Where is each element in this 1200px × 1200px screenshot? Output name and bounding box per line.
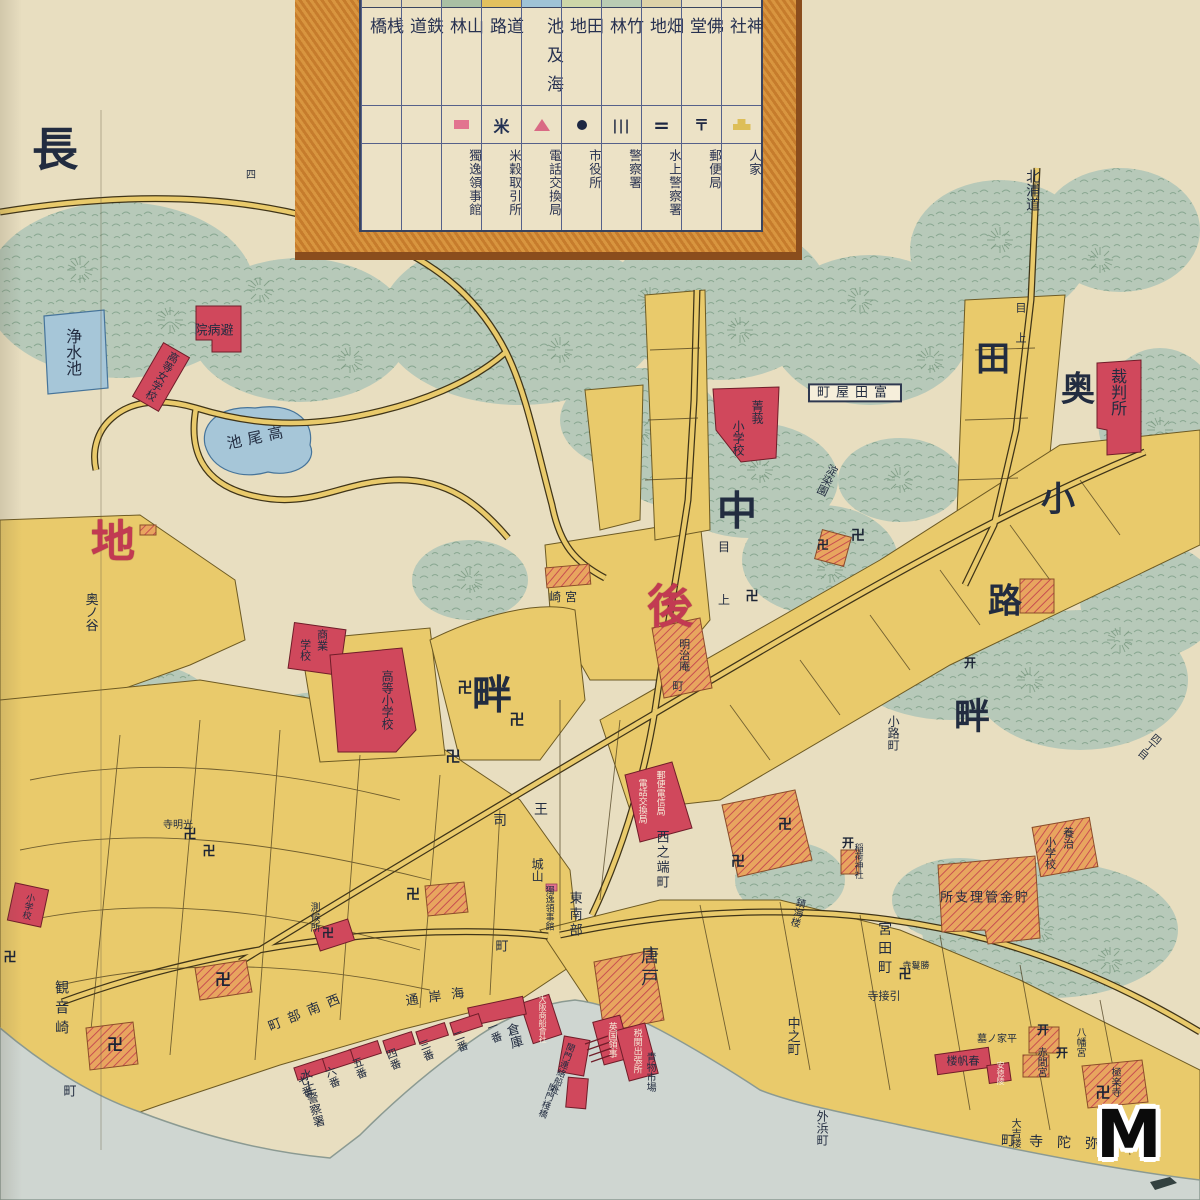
map-label: 楼帆春 — [947, 1055, 980, 1066]
map-label: 院病避 — [194, 324, 233, 337]
shrine-torii-icon: 开 — [842, 837, 854, 849]
map-label: 商業 — [316, 629, 327, 651]
map-label: 小学校 — [1044, 837, 1055, 870]
map-label: 北浦道 — [1025, 169, 1039, 211]
map-label: 四 — [246, 171, 256, 181]
map-label: 西之端町 — [654, 830, 667, 890]
legend-symbol-cell — [522, 106, 561, 144]
map-label: 後 — [647, 584, 693, 631]
map-label: 奥 — [1061, 373, 1095, 408]
temple-manji-icon: 卍 — [745, 591, 758, 604]
temple-manji-icon: 卍 — [731, 855, 745, 869]
map-label: 明治庵 — [678, 639, 689, 672]
legend-terrain-label: 山林 — [442, 8, 481, 106]
map-label: 青物市場 — [644, 1052, 654, 1092]
legend-column: 山林 獨逸領事館 — [441, 0, 481, 230]
map-label: 小 — [1041, 483, 1075, 518]
map-label: 電話交換局 — [636, 779, 645, 824]
legend-symbol-icon — [534, 119, 550, 131]
legend-facility-label: 人家 — [722, 144, 761, 230]
legend-symbol-icon — [493, 113, 509, 137]
map-label: 菁莪 — [751, 400, 763, 424]
legend-panel: 桟橋 鉄道 — [359, 0, 763, 232]
map-label: 目 — [718, 541, 730, 553]
legend-symbol-cell — [682, 106, 721, 144]
map-label: 地 — [91, 521, 135, 566]
legend-column: 鉄道 — [401, 0, 441, 230]
map-label: 城山 — [531, 858, 543, 882]
map-label: 英国領事 — [606, 1022, 615, 1058]
temple-manji-icon: 卍 — [445, 750, 460, 765]
legend-terrain-swatch — [602, 0, 641, 8]
map-label: 獨逸領事館 — [543, 886, 552, 931]
legend-terrain-swatch — [562, 0, 601, 8]
map-label: 八幡宮 — [1074, 1027, 1084, 1057]
map-label: 町 — [63, 1085, 76, 1098]
legend-symbol-icon — [653, 113, 670, 137]
map-label: 町 — [495, 940, 508, 953]
map-label: 路 — [988, 585, 1022, 620]
legend-terrain-label: 佛堂 — [682, 8, 721, 106]
legend-symbol-cell — [442, 106, 481, 144]
map-label: 田 — [976, 343, 1010, 378]
map-label: 所支理管金貯 — [940, 891, 1030, 904]
legend-column: 桟橋 — [361, 0, 401, 230]
legend-symbol-icon — [577, 120, 587, 130]
legend-facility-label: 郵便局 — [682, 144, 721, 230]
map-label: 高等小学校 — [381, 670, 393, 730]
legend-facility-label — [402, 144, 441, 230]
legend-facility-label: 獨逸領事館 — [442, 144, 481, 230]
legend-symbol-icon — [733, 119, 751, 130]
higher-elementary-building — [330, 648, 416, 752]
legend-facility-label: 米穀取引所 — [482, 144, 521, 230]
legend-symbol-icon — [694, 114, 709, 135]
legend-terrain-swatch — [442, 0, 481, 8]
map-label: 畔 — [472, 676, 512, 717]
paper-crease — [100, 110, 102, 1150]
legend-terrain-label: 鉄道 — [402, 8, 441, 106]
shrine-torii-icon: 开 — [1056, 1047, 1068, 1059]
legend-terrain-label: 桟橋 — [362, 8, 401, 106]
legend-facility-label: 水上警察署 — [642, 144, 681, 230]
temple-manji-icon: 卍 — [107, 1037, 123, 1053]
map-label: 小学校 — [732, 420, 744, 456]
legend-symbol-icon — [612, 115, 630, 134]
legend-column: 池及海 電話交換局 — [521, 0, 561, 230]
map-label: 中之町 — [785, 1017, 798, 1056]
legend-terrain-swatch — [402, 0, 441, 8]
temple-manji-icon: 卍 — [898, 969, 911, 982]
legend-facility-label — [362, 144, 401, 230]
temple-manji-icon: 卍 — [406, 888, 420, 902]
legend-facility-label: 電話交換局 — [522, 144, 561, 230]
map-label: 上 — [718, 594, 730, 606]
legend-terrain-swatch — [482, 0, 521, 8]
map-label: 崎宮 — [549, 591, 581, 603]
historic-japanese-city-map: 桟橋 鉄道 — [0, 0, 1200, 1200]
legend-symbol-cell — [362, 106, 401, 144]
temple-manji-icon: 卍 — [509, 713, 524, 728]
legend-terrain-label: 田地 — [562, 8, 601, 106]
map-label: 司 — [493, 814, 507, 828]
legend-symbol-cell — [402, 106, 441, 144]
map-label: 養治 — [1062, 827, 1073, 849]
map-label: 小路町 — [887, 715, 899, 751]
legend-symbol-cell — [722, 106, 761, 144]
legend-symbol-icon — [454, 120, 469, 129]
map-label: 大阪商船會社 — [538, 995, 546, 1043]
legend-symbol-cell — [562, 106, 601, 144]
legend-symbol-cell — [602, 106, 641, 144]
miyazaki-block — [545, 564, 591, 588]
map-label: 奥ノ谷 — [83, 593, 96, 632]
temple-manji-icon: 卍 — [851, 529, 865, 543]
legend-column: 畑地 水上警察署 — [641, 0, 681, 230]
temple-manji-icon: 卍 — [183, 829, 196, 842]
map-label: 観音崎 — [54, 980, 68, 1040]
map-label: 赤間宮 — [1035, 1047, 1045, 1077]
map-label: 税関出張所 — [631, 1029, 640, 1074]
legend-column: 竹林 警察署 — [601, 0, 641, 230]
legend-terrain-label: 畑地 — [642, 8, 681, 106]
shrine-torii-icon: 开 — [964, 657, 976, 669]
legend-symbol-cell — [642, 106, 681, 144]
temple-manji-icon: 卍 — [3, 952, 16, 965]
legend-terrain-label: 竹林 — [602, 8, 641, 106]
map-label: 裁判所 — [1109, 368, 1125, 416]
map-label: 宮田町 — [877, 922, 891, 979]
temple-manji-icon: 卍 — [202, 846, 215, 859]
legend-terrain-label: 池及海 — [522, 8, 561, 106]
map-legend: 桟橋 鉄道 — [295, 0, 802, 260]
temple-manji-icon: 卍 — [817, 539, 829, 551]
legend-terrain-swatch — [642, 0, 681, 8]
map-label: 唐戸 — [639, 946, 657, 990]
paper-edge-shade — [0, 0, 22, 1200]
legend-terrain-swatch — [722, 0, 761, 8]
temple-manji-icon: 卍 — [778, 818, 792, 832]
map-label: 上 — [1016, 332, 1027, 343]
temple-manji-icon: 卍 — [322, 927, 334, 939]
map-label: 目 — [1016, 302, 1027, 313]
legend-terrain-label: 神社 — [722, 8, 761, 106]
temple-manji-icon: 卍 — [457, 681, 472, 696]
map-label: 町 — [673, 680, 684, 691]
map-label: 浄水池 — [64, 328, 80, 376]
map-label: 王 — [534, 803, 548, 817]
legend-column: 道路 米穀取引所 — [481, 0, 521, 230]
shrine-torii-icon: 开 — [1037, 1024, 1049, 1036]
legend-terrain-swatch — [682, 0, 721, 8]
map-label: 寺接引 — [868, 990, 901, 1001]
map-label: 外浜町 — [816, 1110, 828, 1146]
map-label: 測候所 — [308, 902, 318, 932]
legend-terrain-swatch — [362, 0, 401, 8]
legend-column: 田地 市役所 — [561, 0, 601, 230]
legend-column: 佛堂 郵便局 — [681, 0, 721, 230]
map-label: 長 — [32, 127, 78, 174]
map-label: 郵便電信局 — [654, 771, 663, 816]
map-label: 中 — [717, 492, 757, 533]
legend-facility-label: 警察署 — [602, 144, 641, 230]
map-label: 墓ノ家平 — [977, 1035, 1017, 1045]
temple-manji-icon: 卍 — [215, 972, 231, 988]
map-label: 東南部 — [567, 891, 580, 939]
legend-symbol-cell — [482, 106, 521, 144]
legend-terrain-label: 道路 — [482, 8, 521, 106]
map-label: 安徳陵 — [996, 1061, 1004, 1085]
map-label: 学校 — [299, 639, 310, 661]
legend-terrain-swatch — [522, 0, 561, 8]
map-label: 町屋田富 — [808, 383, 902, 402]
legend-facility-label: 市役所 — [562, 144, 601, 230]
legend-column: 神社 人家 — [721, 0, 761, 230]
map-label: 畔 — [954, 699, 990, 736]
watermark-m: M — [1096, 1096, 1162, 1173]
